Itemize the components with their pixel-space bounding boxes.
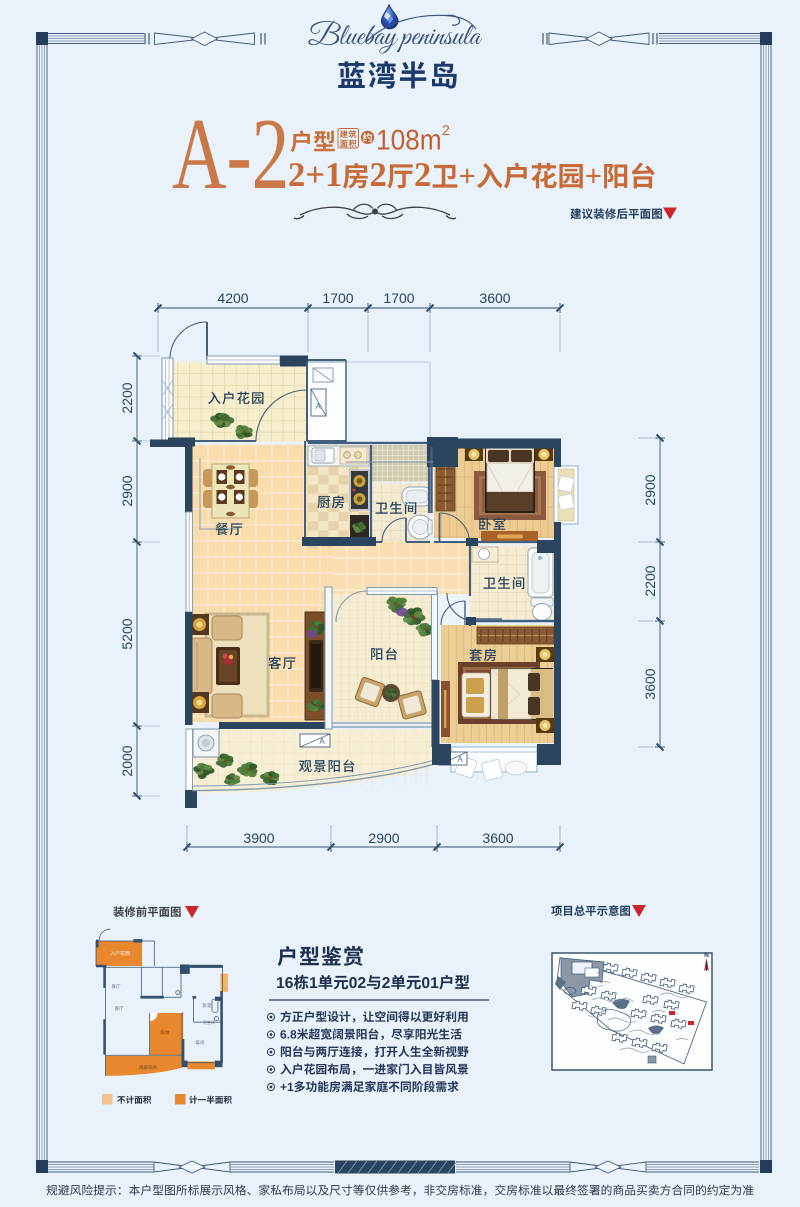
svg-text:A: A [315,402,321,411]
svg-text:3900: 3900 [243,830,274,846]
svg-text:4200: 4200 [217,290,248,306]
svg-text:2900: 2900 [119,475,135,506]
svg-text:A: A [457,755,463,764]
svg-text:3600: 3600 [479,290,510,306]
svg-text:1700: 1700 [322,290,353,306]
svg-text:N: N [704,952,709,959]
svg-text:3600: 3600 [642,668,658,699]
svg-text:2200: 2200 [642,565,658,596]
svg-text:2000: 2000 [119,745,135,776]
svg-text:5200: 5200 [119,618,135,649]
svg-text:3600: 3600 [482,830,513,846]
svg-text:2900: 2900 [368,830,399,846]
svg-text:1700: 1700 [383,290,414,306]
svg-text:A: A [319,737,325,746]
svg-text:2200: 2200 [119,382,135,413]
svg-text:2900: 2900 [642,474,658,505]
